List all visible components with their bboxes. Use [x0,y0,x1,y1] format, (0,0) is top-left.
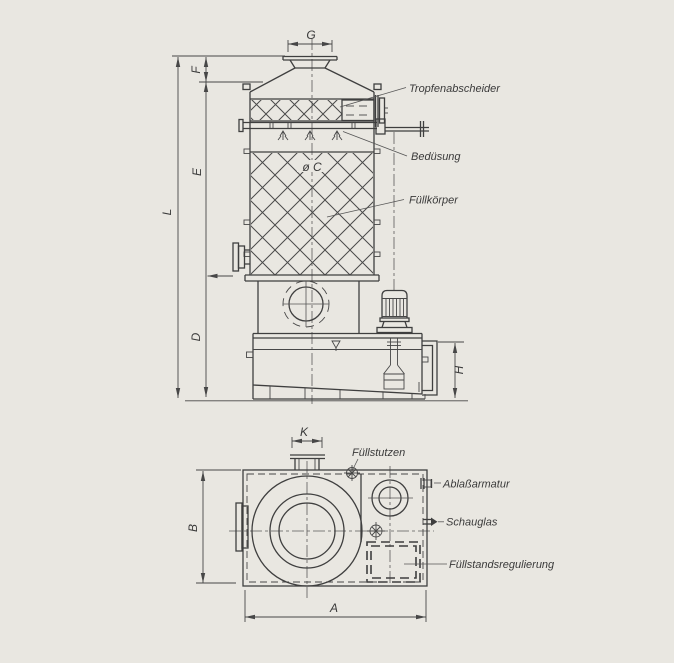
dim-label-f: F [189,66,203,74]
spray-nozzles [278,131,342,140]
plan-pump [368,480,413,516]
front-view: ø C [160,28,501,404]
schauglas-fitting [423,518,438,527]
dim-label-k: K [300,425,309,439]
level-regulation-box [367,542,420,582]
dimension-g: G [288,28,332,52]
dimension-b: B [186,470,241,583]
lifting-lug-right [374,84,381,90]
dim-label-b: B [186,524,200,532]
dimension-k: K [292,425,322,448]
dim-label-g: G [306,28,315,42]
lower-shell [258,281,359,334]
plan-view: K [186,425,555,622]
packing-section: ø C [250,152,374,275]
dim-label-d: D [189,332,203,341]
dim-label-e: E [190,167,204,176]
sump-tank [247,334,438,400]
dimension-a: A [245,590,426,622]
pump-motor [377,291,412,333]
plan-view-callouts: Füllstutzen Ablaßarmatur Schauglas Fülls… [352,447,555,571]
callout-fuellstutzen: Füllstutzen [352,447,405,459]
callout-fuellstandsregulierung: Füllstandsregulierung [449,559,555,571]
lifting-lug-left [243,84,250,90]
top-outlet-stub [283,57,337,69]
callout-beduesung: Bedüsung [411,151,461,163]
water-level-symbol [332,341,340,348]
dimension-h: H [438,342,466,398]
callout-fuellkoerper: Füllkörper [409,195,459,207]
motor-fins [386,299,404,316]
suction-pipe [384,338,405,389]
dim-label-l: L [160,209,174,216]
dim-label-c: ø C [302,160,322,174]
scrubber-technical-drawing: ø C [0,0,674,663]
center-fitting [367,522,385,540]
callout-ablassarmatur: Ablaßarmatur [442,479,511,491]
dim-label-a: A [329,601,338,615]
spray-header [239,119,429,140]
dim-label-h: H [452,365,466,374]
plan-side-flange [236,503,248,551]
plan-outlet-stub [290,455,325,470]
callout-tropfenabscheider: Tropfenabscheider [409,83,501,95]
drawing-sheet: ø C [0,0,674,663]
side-flange-connection [233,243,250,271]
callout-schauglas: Schauglas [446,517,498,529]
fuellstutzen-fitting [344,465,360,481]
